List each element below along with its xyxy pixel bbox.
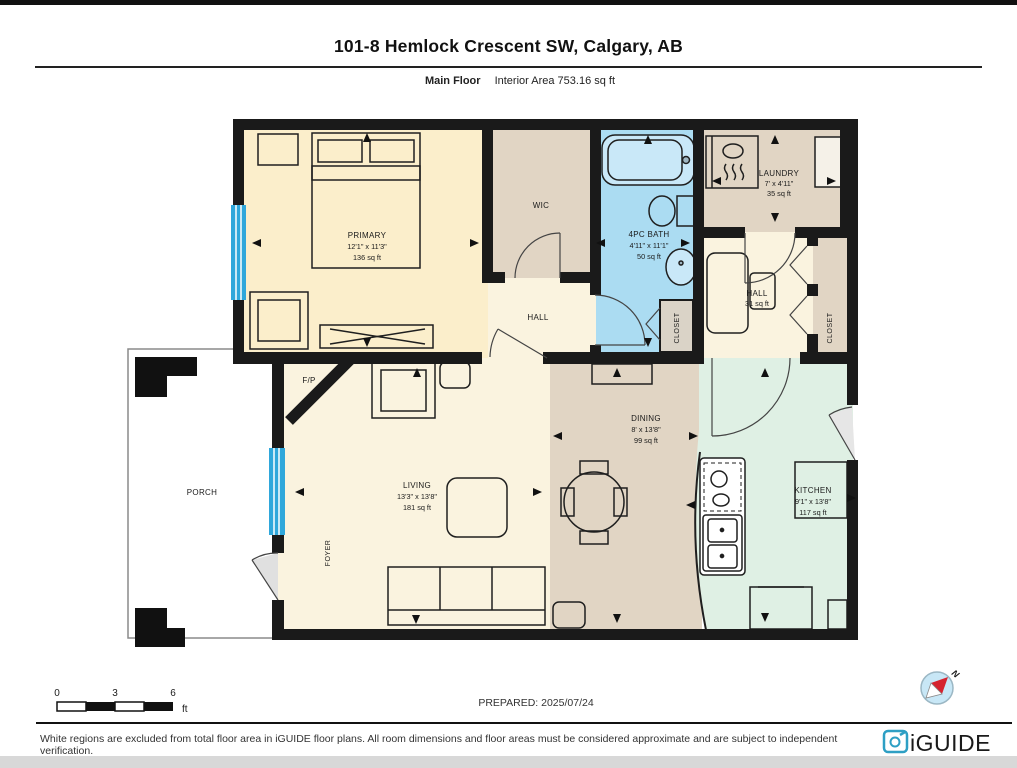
toilet-icon xyxy=(649,196,694,226)
scale-tick-6: 6 xyxy=(170,688,176,699)
window-primary xyxy=(231,205,246,300)
label-fireplace: F/P xyxy=(302,376,315,385)
label-foyer: FOYER xyxy=(325,540,332,567)
label-primary-area: 136 sq ft xyxy=(353,253,381,262)
page-title: 101-8 Hemlock Crescent SW, Calgary, AB xyxy=(0,36,1017,57)
label-hall-lower-area: 31 sq ft xyxy=(745,299,769,308)
label-dining: DINING xyxy=(631,414,661,423)
interior-area-label: Interior Area 753.16 sq ft xyxy=(495,75,615,87)
label-porch: PORCH xyxy=(187,488,217,497)
compass-north-label: N xyxy=(950,668,962,680)
console-icon xyxy=(592,364,652,384)
scale-tick-3: 3 xyxy=(112,688,118,699)
label-laundry-area: 35 sq ft xyxy=(767,189,791,198)
label-dining-dims: 8' x 13'8" xyxy=(631,425,661,434)
label-closet-right: CLOSET xyxy=(827,312,834,343)
scale-bar: 0 3 6 ft xyxy=(40,683,210,718)
scale-tick-0: 0 xyxy=(54,688,60,699)
prepared-date: PREPARED: 2025/07/24 xyxy=(336,697,736,709)
label-bath-area: 50 sq ft xyxy=(637,252,661,261)
label-bath-dims: 4'11" x 11'1" xyxy=(630,241,669,250)
iguide-camera-icon xyxy=(884,731,907,752)
hall-cabinet-icon xyxy=(707,253,748,333)
floorplan-svg: PRIMARY 12'1" x 11'3" 136 sq ft WIC HALL… xyxy=(120,100,890,655)
label-primary: PRIMARY xyxy=(348,231,387,240)
iguide-logo: iGUIDE xyxy=(878,725,998,759)
kitchen-sink-icon xyxy=(703,515,742,571)
label-hall-upper: HALL xyxy=(527,313,548,322)
label-hall-lower: HALL xyxy=(746,289,767,298)
label-living-area: 181 sq ft xyxy=(403,503,431,512)
label-laundry: LAUNDRY xyxy=(759,169,800,178)
fridge-icon xyxy=(750,587,812,629)
floorplan-canvas: PRIMARY 12'1" x 11'3" 136 sq ft WIC HALL… xyxy=(120,100,890,655)
page-bottom-edge xyxy=(0,756,1017,768)
label-kitchen-dims: 9'1" x 13'8" xyxy=(795,497,831,506)
label-kitchen-area: 117 sq ft xyxy=(799,508,826,517)
label-dining-area: 99 sq ft xyxy=(634,436,658,445)
washer-icon xyxy=(706,136,758,188)
window-living xyxy=(269,448,285,535)
top-border-bar xyxy=(0,0,1017,5)
compass-icon: N xyxy=(905,660,975,720)
label-living-dims: 13'3" x 13'8" xyxy=(397,492,437,501)
sink-icon xyxy=(666,249,696,285)
iguide-logo-text: iGUIDE xyxy=(910,730,991,756)
label-living: LIVING xyxy=(403,481,431,490)
label-laundry-dims: 7' x 4'11" xyxy=(765,179,794,188)
label-bath: 4PC BATH xyxy=(629,230,670,239)
label-primary-dims: 12'1" x 11'3" xyxy=(347,242,387,251)
footer-disclaimer: White regions are excluded from total fl… xyxy=(40,733,840,757)
label-kitchen: KITCHEN xyxy=(794,486,831,495)
floor-subtitle: Main FloorInterior Area 753.16 sq ft xyxy=(0,75,1017,87)
label-closet-bath: CLOSET xyxy=(674,312,681,343)
footer-divider xyxy=(36,722,1012,724)
floorplan-page: 101-8 Hemlock Crescent SW, Calgary, AB M… xyxy=(0,0,1017,768)
floor-label: Main Floor xyxy=(425,75,481,87)
title-divider xyxy=(35,66,982,68)
scale-unit: ft xyxy=(182,704,188,715)
label-wic: WIC xyxy=(533,201,549,210)
